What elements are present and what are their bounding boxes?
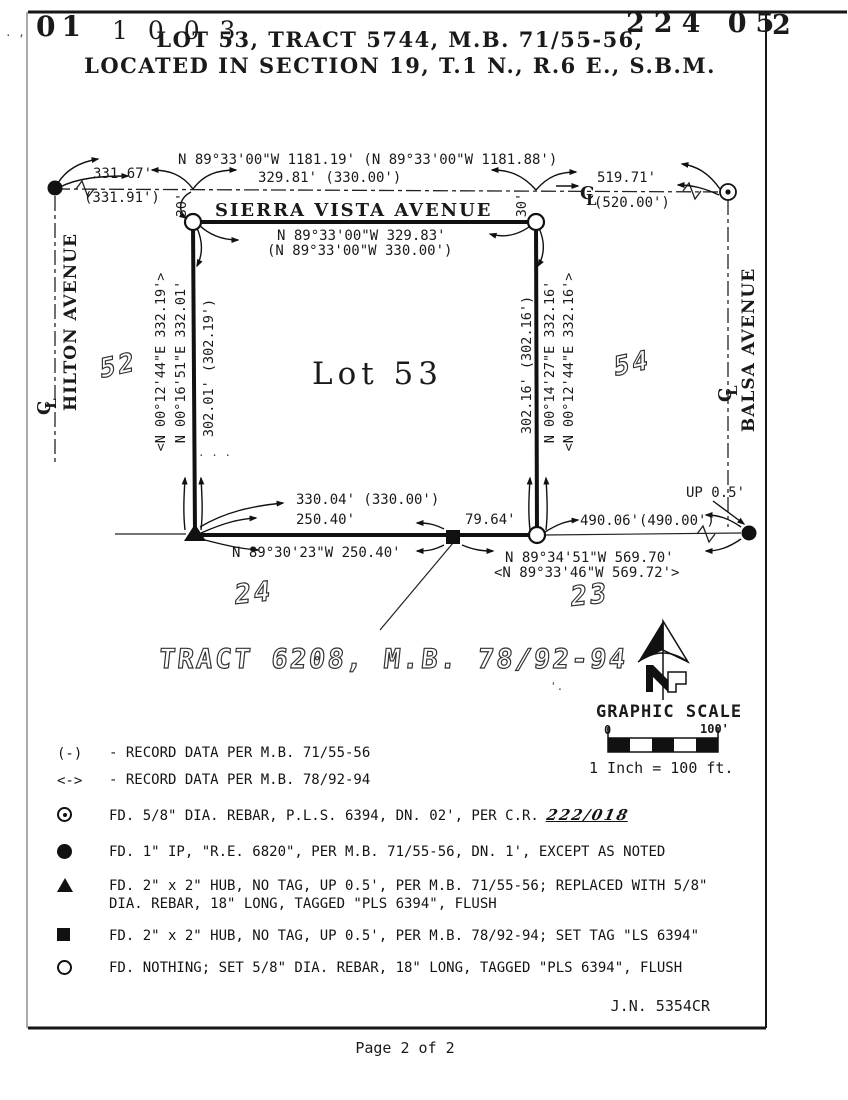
header-corner-number: 2 <box>772 10 791 41</box>
legend-row-found-hub-78: FD. 2" x 2" HUB, NO TAG, UP 0.5', PER M.… <box>57 927 699 945</box>
centerline-symbol-balsa: C L <box>715 385 741 402</box>
found-hub-marker-south <box>446 530 460 544</box>
dim-east-record: <N 00°12'44"E 332.16'> <box>561 273 577 452</box>
document-title-line2: LOCATED IN SECTION 19, T.1 N., R.6 E., S… <box>60 53 740 78</box>
adjacent-lot-west: 52 <box>100 347 136 385</box>
legend-row-found-nothing: FD. NOTHING; SET 5/8" DIA. REBAR, 18" LO… <box>57 959 682 977</box>
dim-west-record: <N 00°12'44"E 332.19'> <box>153 273 169 452</box>
street-name-sierra-vista: SIERRA VISTA AVENUE <box>215 200 493 221</box>
job-number: J.N. 5354CR <box>560 997 710 1015</box>
legend-text: - RECORD DATA PER M.B. 78/92-94 <box>109 771 370 789</box>
found-rebar-marker-ne <box>720 184 736 200</box>
dim-north-east-seg: 519.71' <box>597 170 656 186</box>
legend-angle-symbol: <-> <box>57 771 109 790</box>
dim-north-west-seg: 331.67' <box>93 166 152 182</box>
scanned-survey-page: { "page": { "header_left_num": "01", "he… <box>0 0 848 1100</box>
dim-west-dist: 302.01' (302.19') <box>201 299 217 437</box>
scale-caption: 1 Inch = 100 ft. <box>589 759 734 777</box>
dim-north-east-seg-record: (520.00') <box>594 195 670 211</box>
legend-text-line2: DIA. REBAR, 18" LONG, TAGGED "PLS 6394",… <box>109 895 707 913</box>
found-ip-marker-nw <box>48 181 63 196</box>
legend-paren-symbol: (-) <box>57 744 109 763</box>
centerline-symbol-top: C L <box>580 183 597 209</box>
legend-text: FD. 1" IP, "R.E. 6820", PER M.B. 71/55-5… <box>109 843 665 861</box>
filled-triangle-icon <box>57 878 73 892</box>
graphic-scale-title: GRAPHIC SCALE <box>596 702 742 722</box>
dim-south-total: N 89°34'51"W 569.70' <box>505 550 674 566</box>
open-circle-icon <box>57 960 72 975</box>
legend-row-found-ip: FD. 1" IP, "R.E. 6820", PER M.B. 71/55-5… <box>57 843 665 861</box>
graphic-scale: GRAPHIC SCALE 0 100' 1 Inch = 100 ft. <box>589 702 742 777</box>
street-name-hilton: HILTON AVENUE <box>61 233 81 411</box>
dim-north-mid-seg: 329.81' (330.00') <box>258 170 401 186</box>
found-ip-marker-se <box>742 526 757 541</box>
dim-offset-right: 30' <box>514 193 530 217</box>
dim-north-total: N 89°33'00"W 1181.19' (N 89°33'00"W 1181… <box>178 152 557 168</box>
tract-note: TRACT 6208, M.B. 78/92-94 <box>157 644 629 675</box>
dim-south-total-record: <N 89°33'46"W 569.72'> <box>494 565 679 581</box>
dim-offset-left: 30' <box>174 193 190 217</box>
lot-label: Lot 53 <box>312 356 443 392</box>
legend-text: FD. 2" x 2" HUB, NO TAG, UP 0.5', PER M.… <box>109 927 699 945</box>
svg-text:L: L <box>42 398 60 409</box>
dim-north-west-seg-record: (331.91') <box>84 190 160 206</box>
legend-text: - RECORD DATA PER M.B. 71/55-56 <box>109 744 370 762</box>
circle-dot-icon <box>57 807 72 822</box>
extension-lines <box>115 533 741 630</box>
adjacent-lot-east: 54 <box>614 345 650 383</box>
street-name-balsa: BALSA AVENUE <box>739 268 759 432</box>
filled-square-icon <box>57 928 70 941</box>
svg-text:L: L <box>723 385 741 396</box>
adjacent-lot-southeast: 23 <box>570 578 610 613</box>
dim-south-mid-seg: 79.64' <box>465 512 516 528</box>
scan-noise-mark: . . . <box>198 446 231 459</box>
dim-lot-north: N 89°33'00"W 329.83' <box>277 228 446 244</box>
legend-row-record-78: <-> - RECORD DATA PER M.B. 78/92-94 <box>57 771 370 790</box>
dim-south-west-seg: 250.40' <box>296 512 355 528</box>
document-title-line1: LOT 53, TRACT 5744, M.B. 71/55-56, <box>60 27 740 52</box>
dim-south-east-seg: 490.06'(490.00') <box>580 513 715 529</box>
page-footer: Page 2 of 2 <box>0 1039 810 1057</box>
dim-east-bearing: N 00°14'27"E 332.16' <box>542 281 558 444</box>
dim-east-dist: 302.16' (302.16') <box>519 296 535 434</box>
adjacent-lot-southwest: 24 <box>234 576 274 611</box>
dim-south-lot: 330.04' (330.00') <box>296 492 439 508</box>
set-rebar-marker-se-corner <box>529 527 545 543</box>
scan-noise-mark: . , <box>5 26 25 39</box>
up-note: UP 0.5' <box>686 485 745 501</box>
centerline-symbol-hilton: C L <box>34 398 60 415</box>
lot-west-line <box>193 222 195 535</box>
filled-circle-icon <box>57 844 72 859</box>
lot-east-line <box>536 222 537 535</box>
legend-text: FD. NOTHING; SET 5/8" DIA. REBAR, 18" LO… <box>109 959 682 977</box>
dim-west-bearing: N 00°16'51"E 332.01' <box>173 281 189 444</box>
svg-text:L: L <box>586 191 597 209</box>
set-rebar-marker-ne-corner <box>528 214 544 230</box>
legend-handwritten-cr-number: 222/018 <box>545 806 631 824</box>
legend-row-found-rebar: FD. 5/8" DIA. REBAR, P.L.S. 6394, DN. 02… <box>57 806 629 825</box>
dim-south-bearing: N 89°30'23"W 250.40' <box>232 545 401 561</box>
legend-text: FD. 5/8" DIA. REBAR, P.L.S. 6394, DN. 02… <box>109 808 539 824</box>
legend-text: FD. 2" x 2" HUB, NO TAG, UP 0.5', PER M.… <box>109 877 707 895</box>
scan-noise-mark: '. <box>550 680 563 693</box>
dim-lot-north-record: (N 89°33'00"W 330.00') <box>267 243 452 259</box>
legend-row-record-71: (-) - RECORD DATA PER M.B. 71/55-56 <box>57 744 370 763</box>
north-arrow-icon <box>638 621 688 700</box>
legend-row-found-hub-71: FD. 2" x 2" HUB, NO TAG, UP 0.5', PER M.… <box>57 877 707 913</box>
scale-tick-100: 100' <box>700 722 729 736</box>
